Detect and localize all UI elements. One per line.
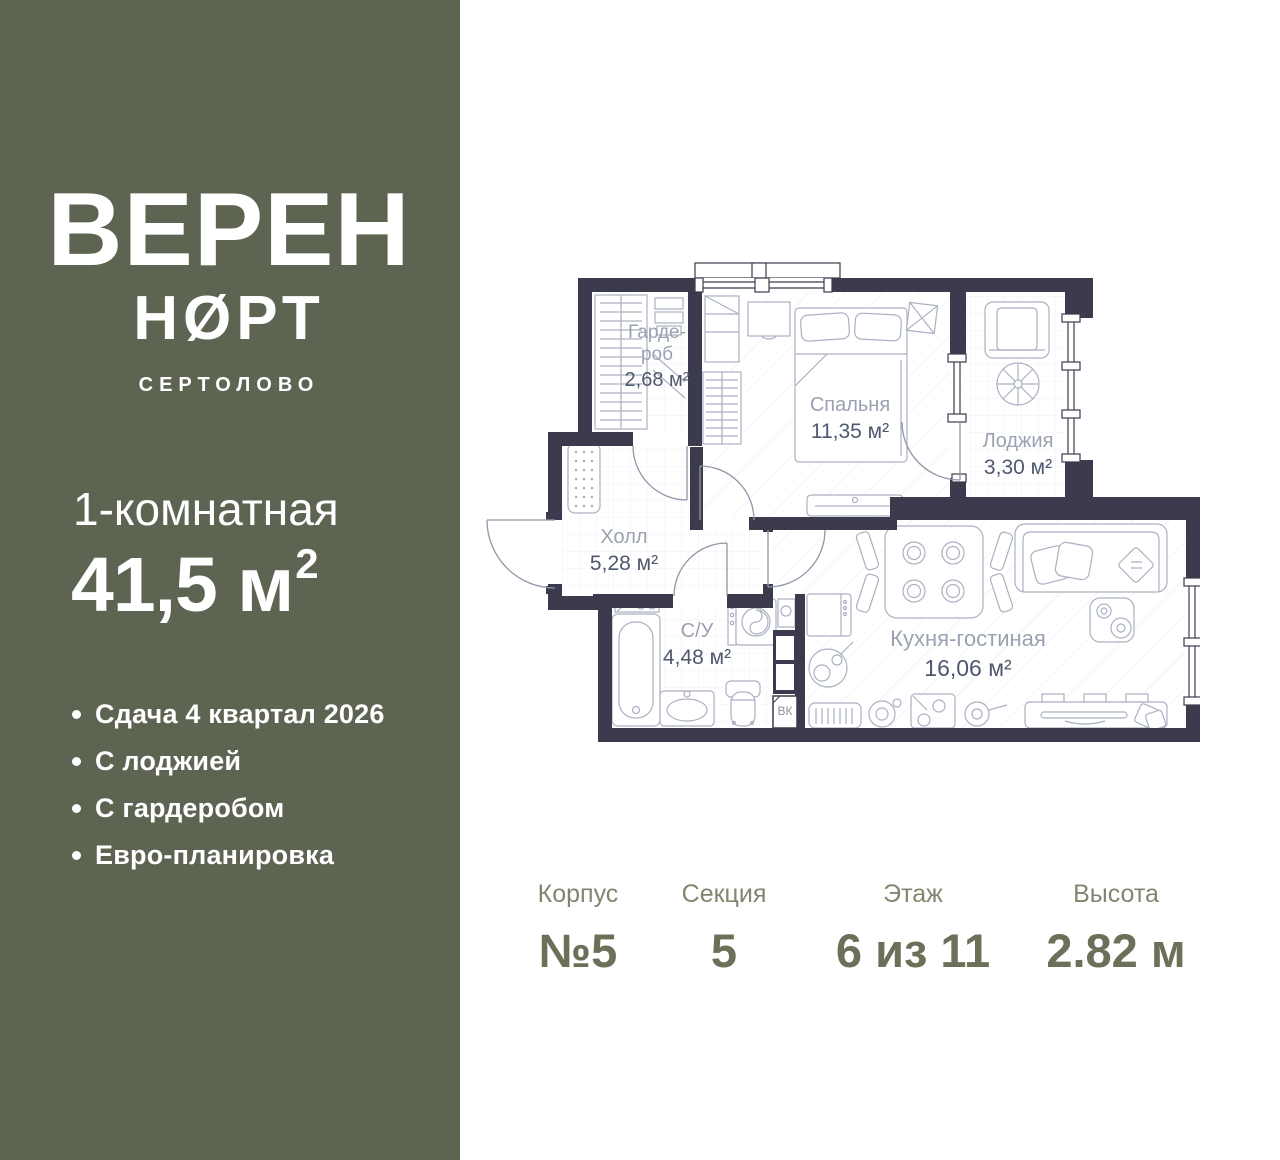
info-column-building: Корпус №5 <box>538 880 619 978</box>
info-column-section: Секция 5 <box>682 880 767 978</box>
brand-city: СЕРТОЛОВО <box>40 374 418 397</box>
info-label: Высота <box>1046 880 1185 909</box>
area-superscript: 2 <box>295 540 317 587</box>
info-value: №5 <box>538 923 619 978</box>
feature-item: С лоджией <box>72 747 385 775</box>
bullet-icon <box>72 710 81 719</box>
area-value: 41,5 м <box>71 542 293 628</box>
info-column-height: Высота 2.82 м <box>1046 880 1185 978</box>
feature-item: С гардеробом <box>72 794 385 822</box>
info-value: 5 <box>682 923 767 978</box>
info-value: 6 из 11 <box>836 923 990 978</box>
apartment-type: 1-комнатная <box>73 482 339 536</box>
brand-title: ВЕРЕН <box>40 178 418 282</box>
info-label: Секция <box>682 880 767 909</box>
bullet-icon <box>72 804 81 813</box>
feature-label: С лоджией <box>95 746 241 777</box>
bullet-icon <box>72 757 81 766</box>
info-label: Этаж <box>836 880 990 909</box>
feature-label: Евро-планировка <box>95 840 334 871</box>
sidebar: ВЕРЕН НØРТ СЕРТОЛОВО 1-комнатная 41,5 м2… <box>0 0 460 1160</box>
brand-logo: ВЕРЕН НØРТ СЕРТОЛОВО <box>40 178 418 397</box>
feature-list: Сдача 4 квартал 2026 С лоджией С гардеро… <box>72 700 385 888</box>
feature-item: Сдача 4 квартал 2026 <box>72 700 385 728</box>
info-value: 2.82 м <box>1046 923 1185 978</box>
info-column-floor: Этаж 6 из 11 <box>836 880 990 978</box>
info-label: Корпус <box>538 880 619 909</box>
floor-plan <box>470 262 1200 754</box>
apartment-area: 41,5 м2 <box>71 541 316 630</box>
bullet-icon <box>72 851 81 860</box>
floorplan-panel: Гарде- роб 2,68 м² Спальня 11,35 м² Лодж… <box>460 0 1280 1160</box>
shaft-label: ВК <box>778 704 793 718</box>
feature-label: Сдача 4 квартал 2026 <box>95 699 385 730</box>
feature-label: С гардеробом <box>95 793 284 824</box>
feature-item: Евро-планировка <box>72 841 385 869</box>
brand-subtitle: НØРТ <box>40 288 418 350</box>
